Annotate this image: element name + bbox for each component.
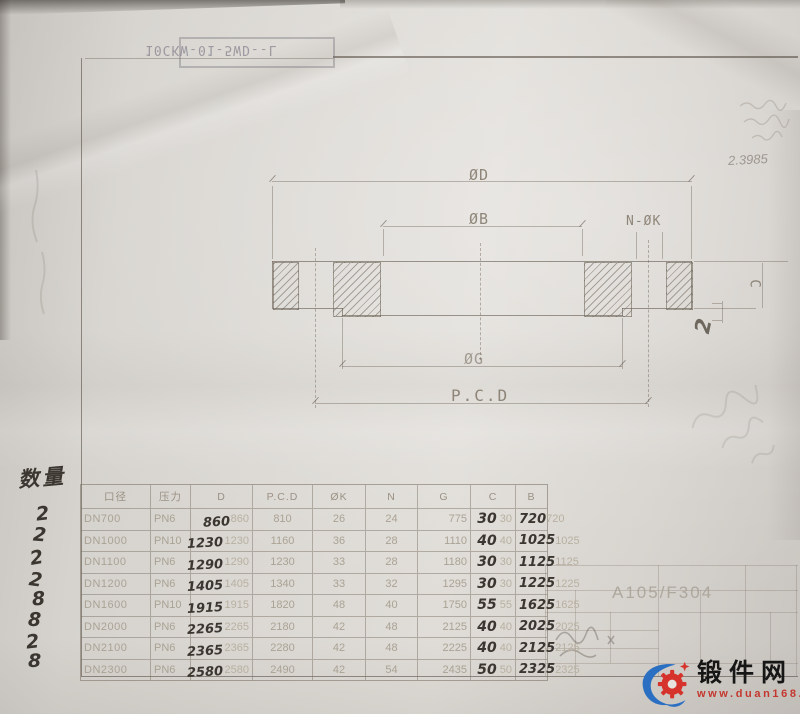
table-cell-dn: DN1100 — [81, 552, 151, 573]
table-cell-d: 19151915 — [191, 595, 253, 616]
printed-value: 1820 — [270, 599, 294, 611]
table-cell-pn: PN6 — [151, 574, 191, 595]
drawing-line — [694, 261, 788, 262]
table-cell-n: 48 — [366, 638, 418, 659]
printed-value: 2025 — [555, 621, 579, 633]
printed-value: 2280 — [270, 642, 294, 654]
printed-value: PN6 — [154, 664, 175, 676]
handwritten-value: 55 — [477, 597, 496, 613]
table-cell-b: 23252325 — [516, 660, 547, 681]
table-header-cell: 口径 — [81, 485, 151, 508]
printed-value: 1025 — [555, 535, 579, 547]
printed-value: 1405 — [225, 578, 249, 590]
printed-value: 1230 — [270, 556, 294, 568]
drawing-line — [383, 229, 384, 256]
handwritten-value: 720 — [519, 512, 546, 527]
table-row: DN1100PN61290129012303328118030301125112… — [81, 551, 547, 573]
table-cell-n: 40 — [366, 595, 418, 616]
handwritten-value: 30 — [477, 554, 496, 570]
printed-value: 40 — [500, 642, 512, 654]
table-cell-b: 16251625 — [516, 595, 547, 616]
table-row: DN1200PN61405140513403332129530301225122… — [81, 573, 547, 595]
printed-value: 30 — [500, 578, 512, 590]
printed-value: 775 — [449, 513, 467, 525]
printed-value: 720 — [546, 513, 564, 525]
table-cell-dn: DN2000 — [81, 617, 151, 638]
table-cell-g: 1180 — [418, 552, 471, 573]
material-spec: A105/F304 — [612, 583, 713, 603]
table-row: DN700PN686086081026247753030720720 — [81, 508, 547, 530]
printed-value: 42 — [333, 642, 345, 654]
dim-label-thickness: C — [747, 279, 763, 288]
drawing-line — [694, 308, 756, 309]
table-cell-n: 48 — [366, 617, 418, 638]
table-cell-b: 10251025 — [516, 531, 547, 552]
handwritten-value: 30 — [477, 576, 496, 592]
table-cell-dn: DN2100 — [81, 638, 151, 659]
printed-value: 2265 — [225, 621, 249, 633]
table-header-cell: C — [471, 485, 516, 508]
table-cell-c: 5050 — [471, 660, 516, 681]
printed-value: DN1100 — [84, 556, 127, 568]
drawing-line — [662, 232, 663, 259]
table-cell-d: 25802580 — [191, 660, 253, 681]
table-cell-c: 4040 — [471, 531, 516, 552]
printed-value: 24 — [385, 513, 397, 525]
table-cell-pn: PN6 — [151, 660, 191, 681]
printed-value: 40 — [500, 535, 512, 547]
printed-value: 810 — [273, 513, 291, 525]
table-cell-n: 54 — [366, 660, 418, 681]
handwritten-value: 2025 — [519, 619, 555, 634]
table-cell-pn: PN6 — [151, 617, 191, 638]
handwritten-value: 40 — [477, 619, 496, 635]
drawing-line — [636, 232, 637, 259]
printed-value: 48 — [385, 642, 397, 654]
printed-value: 1340 — [270, 578, 294, 590]
table-cell-n: 28 — [366, 552, 418, 573]
table-cell-g: 1295 — [418, 574, 471, 595]
printed-value: 1625 — [555, 599, 579, 611]
table-cell-dn: DN2300 — [81, 660, 151, 681]
drawing-line — [272, 186, 273, 259]
printed-value: 28 — [385, 535, 397, 547]
titleblock-line — [770, 612, 771, 663]
drawing-line — [691, 186, 692, 259]
printed-value: DN700 — [84, 513, 121, 525]
printed-value: DN1000 — [84, 535, 127, 547]
printed-value: 54 — [385, 664, 397, 676]
printed-value: 42 — [333, 664, 345, 676]
handwritten-quantity: 8 — [28, 609, 42, 631]
table-cell-k: 42 — [313, 638, 366, 659]
printed-value: PN10 — [154, 599, 182, 611]
printed-value: 1290 — [225, 556, 249, 568]
faint-handwriting-strokes — [736, 98, 798, 148]
handwritten-value: 30 — [477, 511, 496, 527]
watermark-site-url: www.duan168.com — [697, 688, 800, 700]
printed-value: 30 — [500, 513, 512, 525]
drawing-line — [333, 56, 798, 58]
table-row: DN1000PN10123012301160362811104040102510… — [81, 530, 547, 552]
table-cell-k: 33 — [313, 574, 366, 595]
table-cell-c: 3030 — [471, 574, 516, 595]
table-cell-dn: DN1200 — [81, 574, 151, 595]
centerline — [648, 240, 649, 407]
printed-value: 55 — [500, 599, 512, 611]
printed-value: 860 — [231, 513, 249, 525]
handwritten-value: 1125 — [519, 555, 555, 570]
quantity-column: 22228828 — [0, 0, 70, 714]
dim-label-groove: ØG — [464, 350, 484, 368]
printed-value: 28 — [385, 556, 397, 568]
table-cell-d: 12301230 — [191, 531, 253, 552]
table-cell-b: 11251125 — [516, 552, 547, 573]
handwritten-quantity: 8 — [31, 588, 46, 611]
table-header-row: 口径压力DP.C.DØKNGCB — [81, 485, 547, 508]
printed-value: DN2100 — [84, 642, 127, 654]
drawing-line — [342, 315, 623, 316]
titleblock-line — [545, 565, 798, 566]
table-header-cell: ØK — [313, 485, 366, 508]
dim-label-bolt-circle: P.C.D — [451, 386, 509, 405]
printed-value: DN1600 — [84, 599, 127, 611]
printed-value: 2325 — [555, 664, 579, 676]
section-hatch — [333, 262, 381, 317]
titleblock-line — [545, 612, 798, 613]
table-header-cell: D — [191, 485, 253, 508]
table-cell-pn: PN6 — [151, 552, 191, 573]
printed-value: 1180 — [443, 556, 467, 568]
handwritten-value: 1915 — [187, 600, 224, 617]
watermark-text: 锻件网 www.duan168.com — [697, 660, 800, 700]
handwritten-value: 1405 — [187, 578, 224, 595]
table-cell-k: 26 — [313, 509, 366, 530]
handwritten-value: 1025 — [519, 533, 555, 548]
printed-value: DN2300 — [84, 664, 127, 676]
drawing-line — [712, 303, 722, 304]
table-row: DN2100PN62365236522804248222540402125212… — [81, 637, 547, 659]
printed-value: 40 — [500, 621, 512, 633]
star-icon — [680, 662, 689, 671]
table-cell-pn: PN6 — [151, 509, 191, 530]
printed-value: 1160 — [271, 535, 295, 547]
handwritten-value: 40 — [477, 533, 496, 549]
handwritten-value: 2325 — [519, 662, 555, 677]
table-cell-n: 28 — [366, 531, 418, 552]
gear-icon — [658, 670, 687, 699]
handwritten-value: 2125 — [519, 641, 555, 656]
table-cell-n: 32 — [366, 574, 418, 595]
watermark-site-name: 锻件网 — [697, 660, 800, 685]
table-header-cell: 压力 — [151, 485, 191, 508]
spec-table: 口径压力DP.C.DØKNGCB DN700PN6860860810262477… — [80, 484, 548, 681]
centerline — [480, 243, 481, 360]
printed-value: PN6 — [154, 578, 175, 590]
printed-value: 2580 — [225, 664, 249, 676]
dim-label-outer-diameter: ØD — [469, 166, 489, 184]
section-hatch — [584, 262, 632, 317]
printed-value: PN10 — [154, 535, 182, 547]
printed-value: 1915 — [225, 599, 249, 611]
table-cell-c: 3030 — [471, 509, 516, 530]
table-cell-c: 4040 — [471, 617, 516, 638]
printed-value: 33 — [333, 578, 345, 590]
table-cell-g: 2435 — [418, 660, 471, 681]
table-cell-n: 24 — [366, 509, 418, 530]
printed-value: 2125 — [555, 642, 579, 654]
faint-handwritten-number: 2.3985 — [728, 151, 768, 168]
printed-value: 48 — [385, 621, 397, 633]
handwritten-value: 2265 — [187, 621, 224, 638]
printed-value: 1225 — [555, 578, 579, 590]
handwritten-quantity: 2 — [35, 502, 50, 525]
watermark: 锻件网 www.duan168.com — [638, 660, 800, 710]
table-cell-d: 860860 — [191, 509, 253, 530]
table-cell-g: 775 — [418, 509, 471, 530]
table-cell-pcd: 810 — [253, 509, 313, 530]
printed-value: 33 — [333, 556, 345, 568]
table-cell-b: 21252125 — [516, 638, 547, 659]
printed-value: 1230 — [225, 535, 249, 547]
printed-value: 2490 — [270, 664, 294, 676]
printed-value: 36 — [333, 535, 345, 547]
table-cell-pcd: 2280 — [253, 638, 313, 659]
photo-of-flange-drawing: 10CKW-01-5WD--L ØD ØB N-ØK ØG P.C.D C 2 … — [0, 0, 800, 714]
printed-value: DN1200 — [84, 578, 127, 590]
printed-value: 2435 — [443, 664, 467, 676]
stamp-text: 10CKW-01-5WD--L — [145, 42, 337, 57]
table-header-cell: P.C.D — [253, 485, 313, 508]
table-cell-k: 48 — [313, 595, 366, 616]
table-body: DN700PN686086081026247753030720720DN1000… — [81, 508, 547, 680]
table-header-cell: G — [418, 485, 471, 508]
printed-value: 30 — [500, 556, 512, 568]
printed-value: PN6 — [154, 621, 175, 633]
printed-value: 1125 — [555, 556, 579, 568]
table-cell-d: 23652365 — [191, 638, 253, 659]
dim-label-bolt-holes: N-ØK — [626, 214, 661, 229]
printed-value: 42 — [333, 621, 345, 633]
handwritten-quantity: 2 — [28, 546, 45, 570]
table-cell-pcd: 1160 — [253, 531, 313, 552]
printed-value: 2125 — [443, 621, 467, 633]
table-cell-pcd: 1230 — [253, 552, 313, 573]
table-cell-dn: DN1000 — [81, 531, 151, 552]
table-cell-pcd: 2490 — [253, 660, 313, 681]
printed-value: 1110 — [444, 535, 467, 547]
table-row: DN2300PN62580258024904254243550502325232… — [81, 659, 547, 681]
section-hatch — [273, 262, 299, 310]
printed-value: 2225 — [443, 642, 467, 654]
table-cell-dn: DN1600 — [81, 595, 151, 616]
printed-value: 48 — [333, 599, 345, 611]
table-cell-k: 36 — [313, 531, 366, 552]
section-hatch — [666, 262, 693, 310]
drawing-line — [582, 229, 583, 256]
drawing-line — [722, 301, 723, 323]
handwritten-value: 1225 — [519, 576, 555, 591]
printed-value: 2365 — [225, 642, 249, 654]
printed-value: 32 — [385, 578, 397, 590]
printed-value: 50 — [500, 664, 512, 676]
table-cell-d: 14051405 — [191, 574, 253, 595]
table-cell-pn: PN10 — [151, 595, 191, 616]
table-cell-g: 2125 — [418, 617, 471, 638]
table-cell-pn: PN10 — [151, 531, 191, 552]
dim-label-bore: ØB — [469, 210, 489, 228]
printed-value: PN6 — [154, 513, 175, 525]
table-cell-pn: PN6 — [151, 638, 191, 659]
printed-value: 26 — [333, 513, 345, 525]
table-cell-g: 1750 — [418, 595, 471, 616]
handwritten-value: 50 — [477, 662, 496, 678]
handwritten-value: 2580 — [187, 664, 224, 681]
handwritten-quantity: 8 — [28, 650, 41, 672]
table-cell-pcd: 2180 — [253, 617, 313, 638]
table-cell-c: 5555 — [471, 595, 516, 616]
duan168-logo-icon — [638, 660, 692, 710]
handwritten-value: 1230 — [187, 535, 224, 552]
table-cell-k: 42 — [313, 660, 366, 681]
table-row: DN1600PN10191519151820484017505555162516… — [81, 594, 547, 616]
printed-value: 1295 — [443, 578, 467, 590]
printed-value: DN2000 — [84, 621, 127, 633]
table-cell-g: 1110 — [418, 531, 471, 552]
table-cell-c: 3030 — [471, 552, 516, 573]
table-cell-pcd: 1340 — [253, 574, 313, 595]
handwritten-value: 1290 — [187, 557, 224, 574]
table-cell-g: 2225 — [418, 638, 471, 659]
table-cell-d: 12901290 — [191, 552, 253, 573]
table-cell-k: 33 — [313, 552, 366, 573]
centerline — [315, 248, 316, 408]
printed-value: PN6 — [154, 556, 175, 568]
printed-value: 40 — [385, 599, 397, 611]
printed-value: 1750 — [443, 599, 467, 611]
table-cell-b: 12251225 — [516, 574, 547, 595]
printed-value: 2180 — [270, 621, 294, 633]
printed-value: PN6 — [154, 642, 175, 654]
table-cell-b: 720720 — [516, 509, 547, 530]
handwritten-quantity: 2 — [32, 524, 47, 547]
table-cell-pcd: 1820 — [253, 595, 313, 616]
table-row: DN2000PN62265226521804248212540402025202… — [81, 616, 547, 638]
handwritten-value: 1625 — [519, 598, 555, 613]
table-cell-c: 4040 — [471, 638, 516, 659]
handwritten-value: 860 — [202, 514, 230, 530]
table-header-cell: N — [366, 485, 418, 508]
table-cell-b: 20252025 — [516, 617, 547, 638]
handwritten-value: 2365 — [187, 643, 224, 660]
handwritten-value: 40 — [477, 640, 496, 656]
table-cell-d: 22652265 — [191, 617, 253, 638]
dim-tick — [579, 220, 586, 227]
table-cell-k: 42 — [313, 617, 366, 638]
table-cell-dn: DN700 — [81, 509, 151, 530]
table-header-cell: B — [516, 485, 547, 508]
